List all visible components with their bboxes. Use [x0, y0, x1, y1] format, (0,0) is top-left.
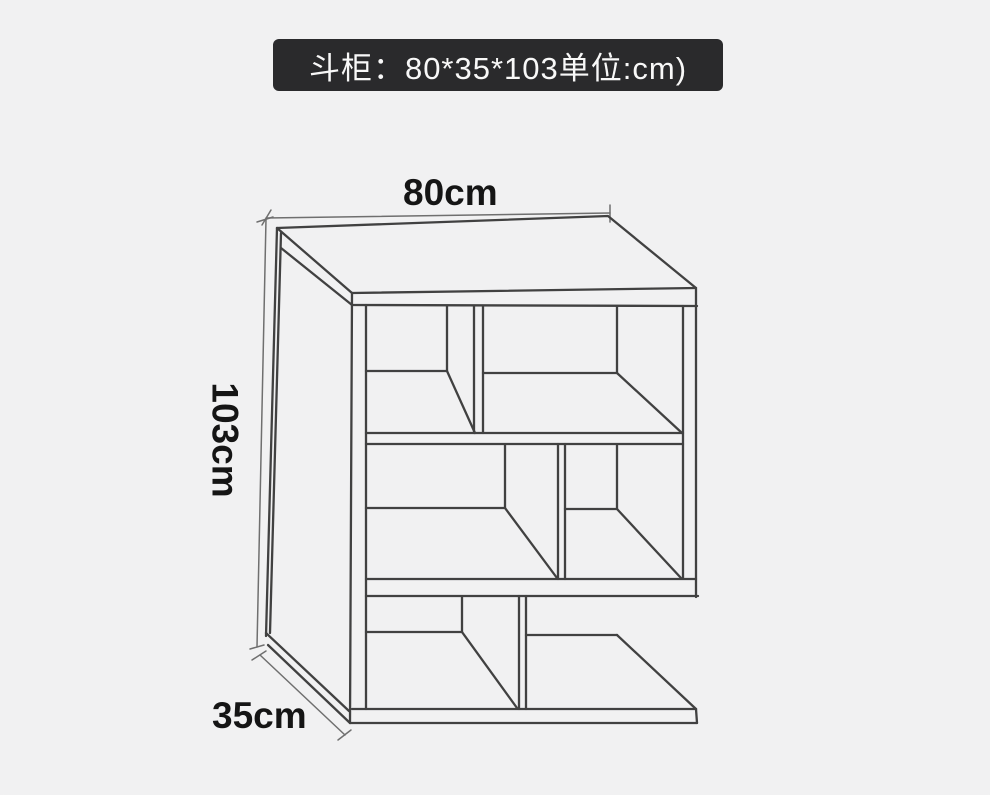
middle-row-compartments: [366, 444, 681, 579]
cabinet-left-panel: [266, 228, 350, 723]
top-row-compartments: [366, 306, 682, 433]
bottom-row-compartments: [366, 596, 696, 709]
width-dimension-label: 80cm: [403, 172, 498, 214]
cabinet-line-drawing: [0, 0, 990, 795]
cabinet-top-panel: [277, 216, 697, 306]
height-dimension-label: 103cm: [204, 382, 246, 497]
depth-dimension-label: 35cm: [212, 695, 307, 737]
height-dimension-line: [250, 217, 273, 649]
cabinet-frame: [350, 289, 696, 723]
product-dimension-image: 斗柜：80*35*103单位:cm): [0, 0, 990, 795]
cabinet-shelves: [350, 433, 698, 723]
